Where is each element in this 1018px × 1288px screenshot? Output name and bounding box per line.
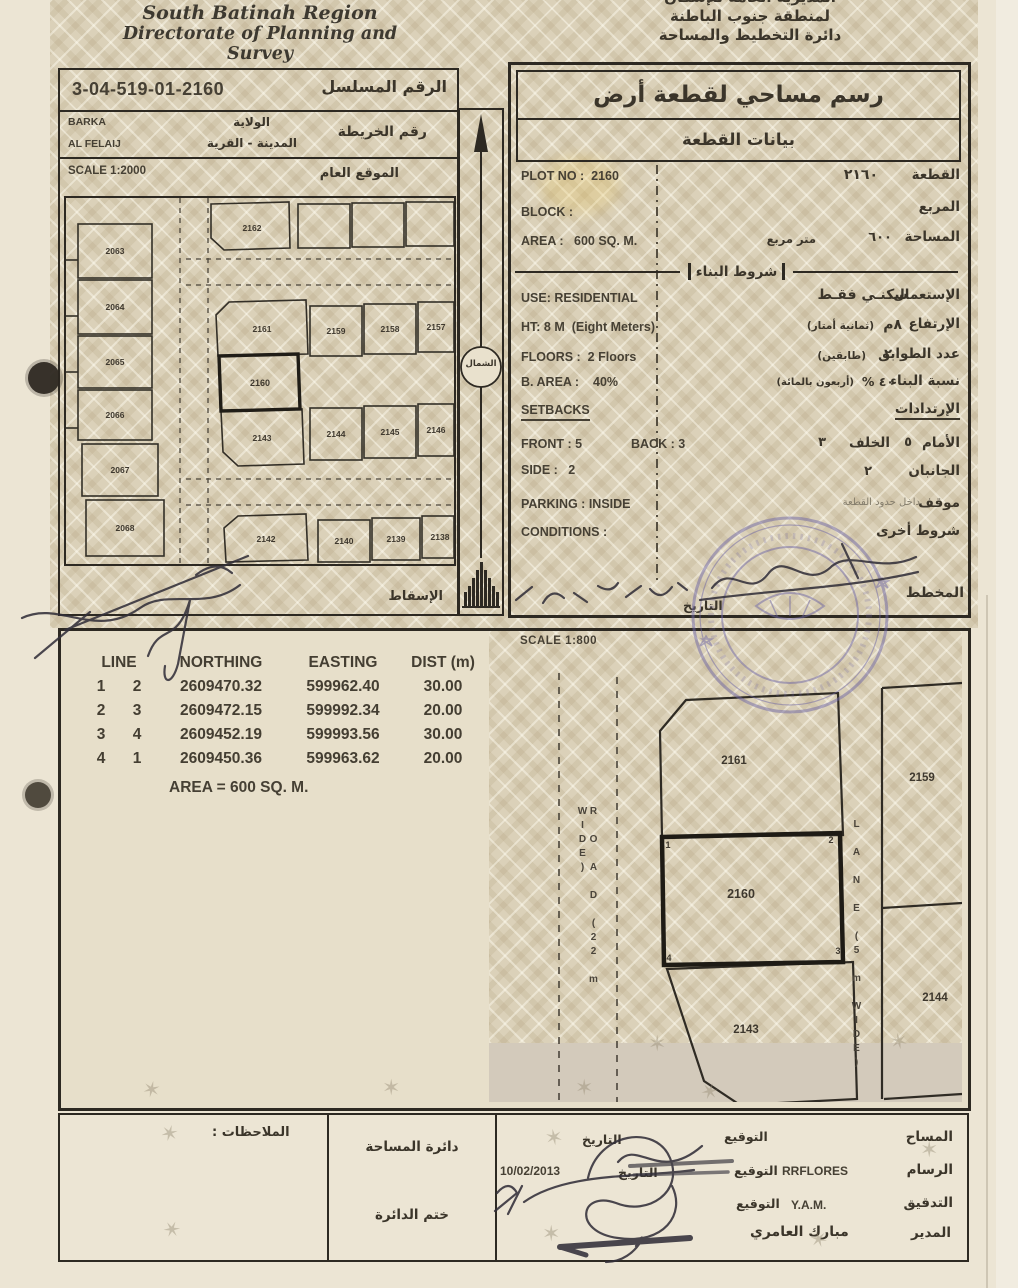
paper-star-mark: ✶ xyxy=(648,1032,666,1057)
side-label-ar: الجانبان xyxy=(908,463,960,479)
plot-drawing-geometry xyxy=(61,631,962,1102)
back-label-ar: الخلف xyxy=(849,435,890,451)
town-label: المدينة - القرية xyxy=(207,136,297,150)
header-directorate-title: Directorate of Planning and Survey xyxy=(90,24,430,64)
corner-3: 3 xyxy=(835,946,840,956)
planner-label-ar: المخطط xyxy=(906,585,964,601)
block-en: BLOCK : xyxy=(521,205,573,219)
site-plot-label: 2143 xyxy=(253,433,272,443)
siteplan-map: 2162 2063 2064 2065 2066 2067 2068 2161 … xyxy=(64,196,456,566)
divider-bracket xyxy=(688,263,691,280)
planner-date-label-ar: التاريخ xyxy=(683,598,723,613)
drawing-plot-2159: 2159 xyxy=(909,772,935,784)
floors-value-ar: ٢ xyxy=(884,347,892,362)
town-value: AL FELAIJ xyxy=(68,138,121,150)
site-plot-label: 2064 xyxy=(106,302,125,312)
height-value-ar: ٨م xyxy=(883,317,902,333)
site-plot-label-subject: 2160 xyxy=(250,378,270,388)
notes-label: الملاحظات : xyxy=(212,1125,290,1140)
footer-divider xyxy=(495,1115,497,1260)
front-label-ar: الأمام xyxy=(922,435,960,451)
wilaya-label: الولاية xyxy=(233,115,270,129)
site-plot-label: 2067 xyxy=(111,465,130,475)
block-label-ar: المربع xyxy=(919,199,960,215)
director-value: مبارك العامري xyxy=(750,1224,849,1240)
building-terms-label: شروط البناء xyxy=(696,264,777,280)
draftsman-value: RRFLORES xyxy=(782,1164,848,1178)
date-label: التاريخ xyxy=(582,1132,622,1147)
site-plot-label: 2068 xyxy=(116,523,135,533)
side-en: SIDE : 2 xyxy=(521,463,575,477)
divider-line xyxy=(515,271,680,273)
panel-subtitle-box: بيانات القطعة xyxy=(516,118,961,162)
header-region-title: South Batinah Region xyxy=(90,2,430,24)
back-en: BACK : 3 xyxy=(631,437,685,451)
building-icon xyxy=(462,562,500,608)
back-value-ar: ٣ xyxy=(818,435,826,450)
serial-row: 3-04-519-01-2160 الرقم المسلسل xyxy=(60,70,457,112)
site-plot-label: 2139 xyxy=(387,534,406,544)
paper-edge xyxy=(996,0,1018,1288)
sign-label: التوقيع xyxy=(736,1196,780,1211)
floors-en: FLOORS : 2 Floors xyxy=(521,350,636,364)
height-note-ar: (ثمانية أمتار) xyxy=(807,320,874,332)
site-plot-label: 2066 xyxy=(106,410,125,420)
map-number-label: رقم الخريطة xyxy=(338,124,427,140)
parking-en: PARKING : INSIDE xyxy=(521,497,631,511)
corner-4: 4 xyxy=(666,953,671,963)
parking-value-ar: داخل حدود القطعة xyxy=(843,497,920,508)
site-plot-label: 2146 xyxy=(427,425,446,435)
site-plot-label: 2140 xyxy=(335,536,354,546)
siteplan-scale: SCALE 1:2000 xyxy=(68,165,146,177)
paper-star-mark: ✶ xyxy=(920,1138,938,1163)
front-value-ar: ٥ xyxy=(904,435,912,450)
plot-info-panel: رسم مساحي لقطعة أرض بيانات القطعة PLOT N… xyxy=(508,62,971,618)
site-plot-label: 2157 xyxy=(427,322,446,332)
dept-label: دائرة المساحة xyxy=(329,1139,495,1155)
parking-label-ar: موقف xyxy=(918,495,960,511)
plot-value-ar: ٢١٦٠ xyxy=(844,167,878,183)
column-divider xyxy=(656,165,658,585)
footer-table: الملاحظات : دائرة المساحة ختم الدائرة ال… xyxy=(58,1113,969,1262)
side-value-ar: ٢ xyxy=(864,464,872,479)
area-en: AREA : 600 SQ. M. xyxy=(521,234,637,248)
area-value-ar: ٦٠٠ xyxy=(868,230,892,245)
area-label-ar: المساحة xyxy=(905,229,960,245)
lane-label: L A N E (5 m WIDE) xyxy=(851,819,862,1084)
site-plot-label: 2145 xyxy=(381,427,400,437)
site-plot-label: 2063 xyxy=(106,246,125,256)
site-plot-label: 2162 xyxy=(243,223,262,233)
barea-en: B. AREA : 40% xyxy=(521,375,618,389)
site-plot-label: 2144 xyxy=(327,429,346,439)
draftsman-label: الرسام xyxy=(907,1162,953,1178)
paper-star-mark: ✶ xyxy=(382,1076,400,1101)
header-ar-line1: المديرية العامة للإسكان xyxy=(560,0,940,7)
director-label: المدير xyxy=(911,1225,951,1241)
barea-label-ar: نسبة البناء xyxy=(890,373,960,389)
site-plot-label: 2159 xyxy=(327,326,346,336)
sign-label: التوقيع xyxy=(724,1129,768,1144)
site-plot-label: 2138 xyxy=(431,532,450,542)
use-en: USE: RESIDENTIAL xyxy=(521,291,638,305)
setbacks-en: SETBACKS xyxy=(521,403,590,421)
area-unit-ar: متر مربع xyxy=(767,232,816,246)
front-en: FRONT : 5 xyxy=(521,437,582,451)
location-row: BARKA AL FELAIJ الولاية المدينة - القرية… xyxy=(60,112,457,159)
serial-number: 3-04-519-01-2160 xyxy=(72,79,224,100)
divider-bracket xyxy=(782,263,785,280)
plot-label-ar: القطعة xyxy=(912,167,960,183)
left-panel: 3-04-519-01-2160 الرقم المسلسل BARKA AL … xyxy=(58,68,459,616)
paper-star-mark: ✶ xyxy=(542,1222,560,1247)
barea-note-ar: (أربعون بالمائة) xyxy=(776,377,854,388)
scanned-survey-document: South Batinah Region Directorate of Plan… xyxy=(0,0,1018,1288)
date-label: التاريخ xyxy=(618,1165,658,1180)
panel-title: رسم مساحي لقطعة أرض xyxy=(593,82,884,108)
drawing-plot-2144: 2144 xyxy=(922,992,948,1004)
header-english: South Batinah Region Directorate of Plan… xyxy=(90,2,430,64)
drawing-plot-2143: 2143 xyxy=(733,1024,759,1036)
corner-1: 1 xyxy=(665,840,670,850)
corner-2: 2 xyxy=(828,835,833,845)
check-label: التدقيق xyxy=(903,1195,953,1211)
survey-panel: SCALE 1:800 LINE NORTHING EASTING DIST (… xyxy=(58,628,971,1111)
height-label-ar: الإرتفاع xyxy=(908,316,960,332)
check-value: Y.A.M. xyxy=(791,1198,826,1212)
footer-divider xyxy=(327,1115,329,1260)
drawing-plot-2160: 2160 xyxy=(727,887,755,901)
north-label: الشمال xyxy=(460,359,502,369)
road-label: R O A D (22 m WIDE) xyxy=(577,806,599,1046)
header-ar-line2: لمنطقة جنوب الباطنة xyxy=(560,7,940,26)
plot-no-en: PLOT NO : 2160 xyxy=(521,169,619,183)
conditions-en: CONDITIONS : xyxy=(521,525,607,539)
panel-title-box: رسم مساحي لقطعة أرض xyxy=(516,70,961,120)
serial-label: الرقم المسلسل xyxy=(321,77,447,96)
paper-star-mark: ✶ xyxy=(575,1076,593,1101)
site-plot-label: 2065 xyxy=(106,357,125,367)
site-plot-label: 2142 xyxy=(257,534,276,544)
dept-stamp-label: ختم الدائرة xyxy=(329,1207,495,1223)
header-ar-line3: دائرة التخطيط والمساحة xyxy=(560,26,940,45)
divider-line xyxy=(793,271,958,273)
setbacks-label-ar: الإرتدادات xyxy=(895,401,960,420)
header-arabic: المديرية العامة للإسكان لمنطقة جنوب البا… xyxy=(560,0,940,45)
sign-label: التوقيع xyxy=(734,1163,778,1178)
use-value-ar: سكنـي فقـط xyxy=(818,287,908,303)
site-plot-label: 2161 xyxy=(253,324,272,334)
wilaya-value: BARKA xyxy=(68,116,106,128)
north-column: الشمال xyxy=(458,108,504,616)
panel-subtitle: بيانات القطعة xyxy=(682,130,795,149)
barea-value-ar: ٤٠ % xyxy=(862,374,894,389)
drawing-plot-2161: 2161 xyxy=(721,755,747,767)
date-value: 10/02/2013 xyxy=(500,1164,560,1178)
conditions-label-ar: شروط أخرى xyxy=(876,523,960,539)
paper-crease xyxy=(986,595,988,1288)
floors-note-ar: (طابقين) xyxy=(817,350,866,362)
building-terms-divider: شروط البناء xyxy=(515,263,958,280)
siteplan-title: الموقع العام xyxy=(320,166,399,181)
plot-outlines xyxy=(660,683,962,1102)
height-en: HT: 8 M (Eight Meters) xyxy=(521,320,655,334)
site-plot-label: 2158 xyxy=(381,324,400,334)
projection-label: الإسقاط xyxy=(388,589,443,604)
